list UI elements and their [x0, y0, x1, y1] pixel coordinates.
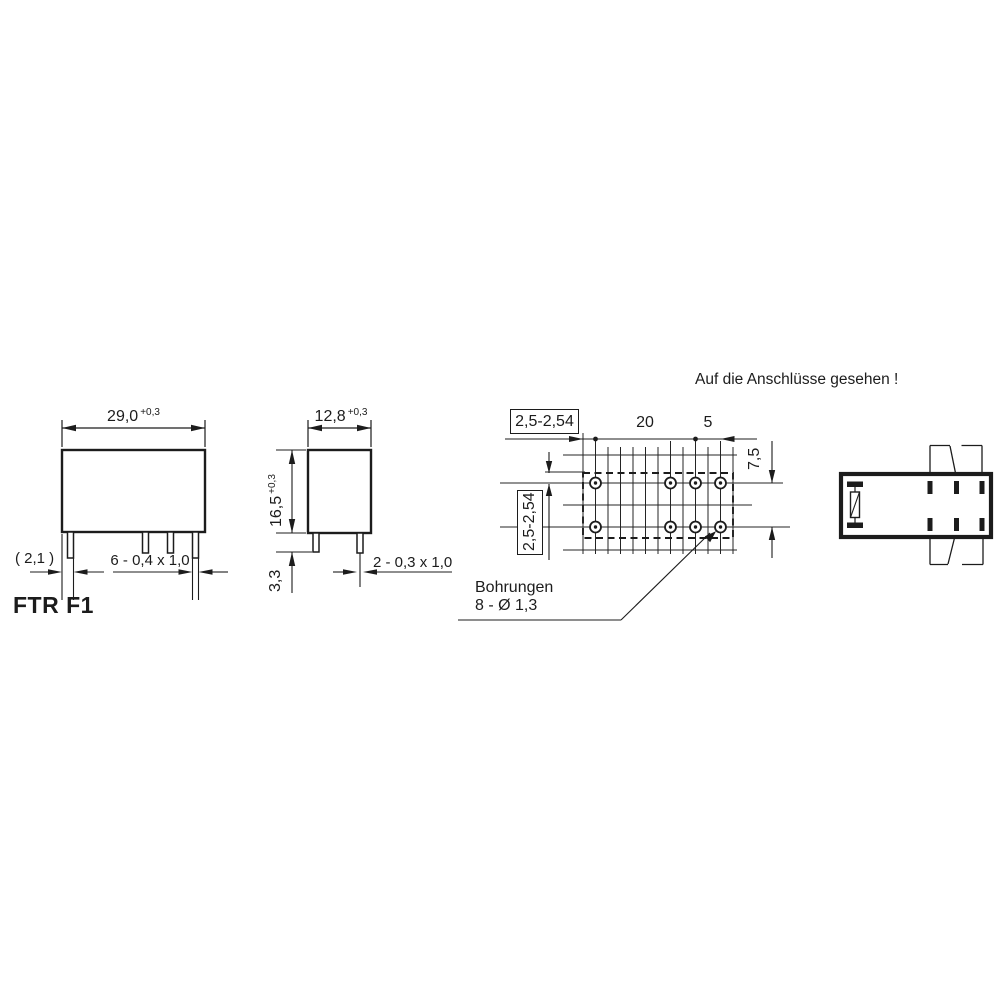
pcb-pitch-left-value: 2,5-2,54: [520, 492, 539, 551]
contact-pad: [954, 481, 959, 494]
relay-pin: [313, 533, 319, 552]
contact-pad: [954, 518, 959, 531]
coil-terminal-pad: [847, 482, 863, 488]
relay-pin: [143, 532, 149, 553]
part-name-label: FTR F1: [13, 596, 94, 615]
side-view-pins: [313, 533, 363, 553]
side-height-tolerance: +0,3: [267, 474, 278, 494]
relay-pin: [357, 533, 363, 553]
side-pin-length-dimension: 3,3: [266, 570, 285, 592]
contact-pad: [928, 518, 933, 531]
relay-body-side-outline: [308, 450, 371, 533]
pcb-left-dimension-lines: [546, 452, 552, 560]
side-height-value: 16,5: [268, 496, 285, 527]
drill-note-line2: 8 - Ø 1,3: [475, 596, 537, 615]
pcb-end-span-dimension: 5: [695, 413, 721, 432]
contact-pad: [980, 481, 985, 494]
datasheet-page: Auf die Anschlüsse gesehen ! 29,0+0,3 ( …: [0, 0, 1000, 1000]
relay-pin: [193, 532, 199, 558]
side-width-tolerance: +0,3: [348, 407, 368, 418]
front-pin-spec: 6 - 0,4 x 1,0: [110, 551, 190, 570]
pinout-schematic: [841, 446, 991, 565]
dimension-drawing: [0, 0, 1000, 1000]
relay-body-front-outline: [62, 450, 205, 532]
schematic-bottom-contact-lines: [930, 537, 983, 565]
front-width-value: 29,0: [107, 408, 138, 425]
relay-pin: [68, 532, 74, 558]
pcb-row-spacing-dimension: 7,5: [745, 448, 764, 470]
relay-outline-schematic: [841, 474, 991, 537]
front-edge-offset-dimension: ( 2,1 ): [15, 549, 54, 568]
pcb-pitch-left-box: 2,5-2,54: [517, 490, 543, 555]
drill-note-line1: Bohrungen: [475, 578, 553, 597]
pcb-row-spacing-dimension-lines: [769, 441, 775, 558]
coil-terminal-pad: [847, 523, 863, 529]
pcb-pitch-top-value: 2,5-2,54: [515, 412, 574, 431]
front-width-dimension: 29,0+0,3: [62, 403, 205, 426]
front-width-tolerance: +0,3: [140, 407, 160, 418]
schematic-top-contact-lines: [930, 446, 982, 475]
pcb-pitch-top-box: 2,5-2,54: [510, 409, 579, 434]
front-view: [30, 420, 228, 600]
side-pin-spec: 2 - 0,3 x 1,0: [373, 553, 452, 572]
contact-pad: [980, 518, 985, 531]
pcb-hole-span-dimension: 20: [595, 413, 695, 432]
side-width-value: 12,8: [315, 408, 346, 425]
relay-pin: [168, 532, 174, 553]
side-width-dimension: 12,8+0,3: [306, 403, 376, 426]
view-title: Auf die Anschlüsse gesehen !: [695, 370, 898, 389]
pcb-top-dimension-lines: [505, 436, 757, 442]
side-height-dimension: 16,5+0,3: [263, 474, 286, 527]
contact-pad: [928, 481, 933, 494]
